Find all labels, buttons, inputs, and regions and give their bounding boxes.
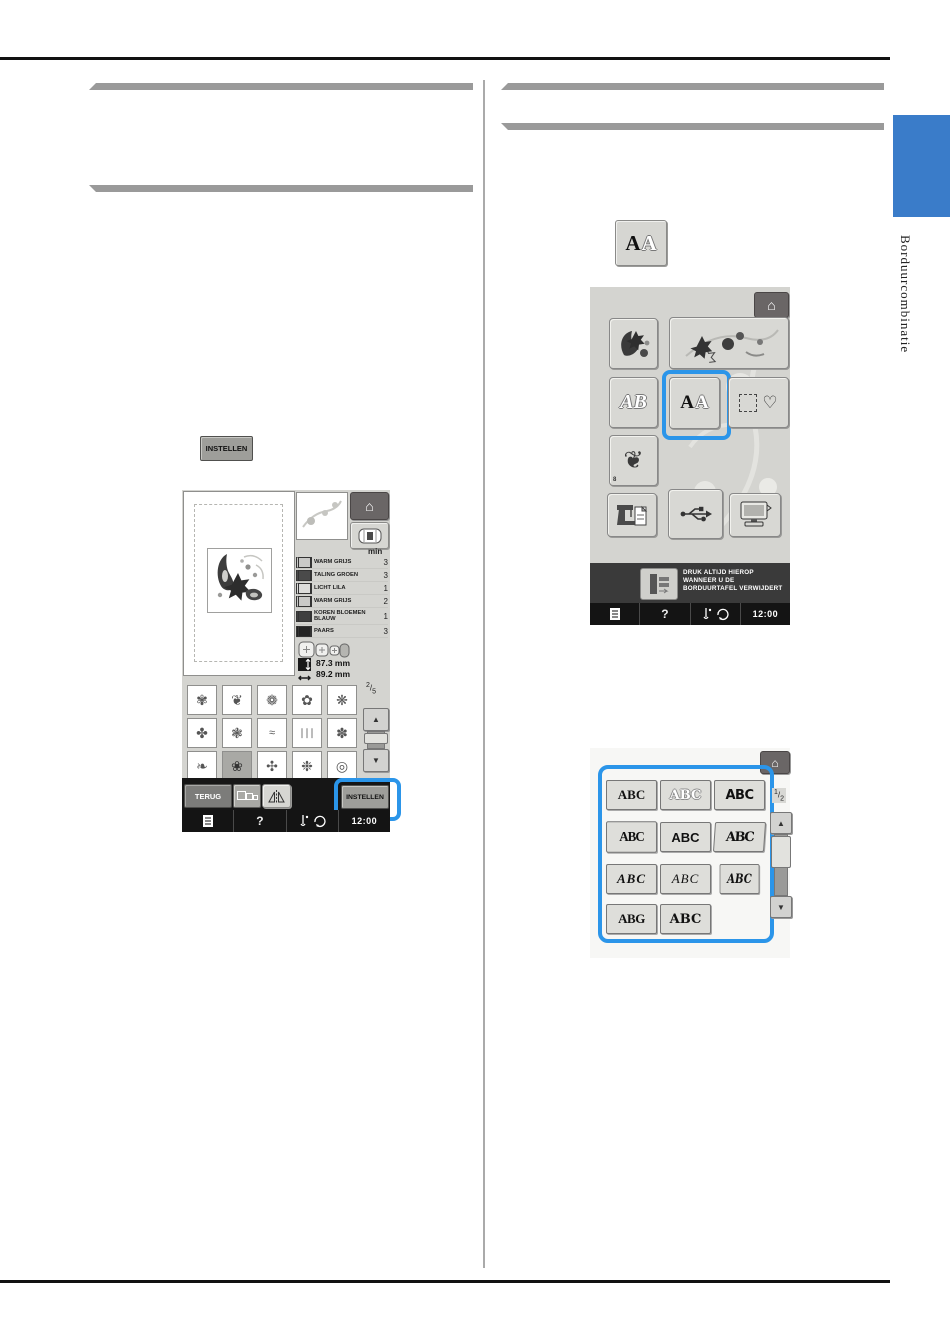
help-icon: ? [661,607,668,621]
usb-media-button[interactable] [668,489,723,539]
pattern-cell[interactable]: ❧ [187,751,217,781]
thread-minutes: 3 [370,571,388,580]
font-sample: ABC [617,871,646,887]
scroll-down-button[interactable]: ▼ [770,896,792,918]
page-den: 5 [372,688,376,695]
up-arrow-icon: ▲ [372,715,380,724]
font-sample: ABC [671,830,699,845]
needle-position-button[interactable] [690,603,740,625]
pattern-cell[interactable]: ❦ [222,685,252,715]
machine-screen-pattern-edit: ⌂ min WARM GRIJS 3 TALING GROEN 3 [182,490,390,832]
thread-row: KOREN BLOEMEN BLAUW 1 [296,608,388,625]
pattern-thumbnail-box [296,492,348,540]
computer-button[interactable] [729,493,781,537]
pattern-cell[interactable]: ❋ [327,685,357,715]
embroidery-carriage-icon [647,573,671,595]
pattern-cell[interactable]: ◎ [327,751,357,781]
thread-minutes: 3 [370,627,388,636]
pattern-preview-area [183,491,295,676]
pattern-cell[interactable]: ✣ [257,751,287,781]
scrollbar-handle[interactable] [771,836,791,868]
status-bar: ? 12:00 [590,603,790,625]
letter-a-outline: A [642,231,657,256]
large-floral-patterns-button[interactable] [669,317,789,369]
chapter-tab [893,115,950,217]
pattern-glyph: ❦ [231,692,243,709]
pattern-glyph: ✽ [336,725,348,742]
thread-minutes: 1 [370,584,388,593]
memo-icon [609,607,621,621]
mirror-image-button[interactable] [262,784,291,808]
needle-threading-rotate-icon [298,814,326,828]
manual-page: Borduurcombinatie INSTELLEN [0,0,950,1344]
heart-icon: ♡ [762,393,777,413]
status-bar: ? 12:00 [182,810,390,832]
scrollwork-icon: ❦ [623,446,643,475]
machine-screen-font-select: ⌂ ABC ABC ABC ABC ABC ABC ABC ABC ABC AB… [590,748,790,958]
thread-name: WARM GRIJS [314,598,370,604]
font-button-5[interactable]: ABC [660,822,711,852]
pattern-glyph: ✾ [196,692,208,709]
hoop-sizes-icon [298,640,350,659]
pattern-glyph: ◎ [336,758,348,775]
font-button-4[interactable]: ABC [606,821,657,853]
top-rule [0,57,890,60]
pattern-glyph: ❁ [266,692,278,709]
thread-minutes: 2 [370,597,388,606]
size-select-button[interactable] [233,784,261,808]
warning-line-3: BORDUURTAFEL VERWIJDERT [683,585,787,593]
page-num: 1 [774,789,778,796]
page-indicator: 2/5 [366,682,376,695]
thread-spool-icon [296,626,312,637]
warning-line-2: WANNEER U DE [683,577,787,585]
dimensions-icon [298,658,312,683]
thread-row: WARM GRIJS 2 [296,595,388,608]
embroidery-patterns-button[interactable] [609,318,658,369]
pattern-glyph: ❋ [336,692,348,709]
font-sample: ABC [672,871,700,887]
thread-name: PAARS [314,628,370,634]
pattern-cell[interactable]: ∣∣∣ [292,718,322,748]
scrollbar-handle[interactable] [364,733,388,744]
pattern-dimensions: 87.3 mm 89.2 mm [298,658,350,683]
up-arrow-icon: ▲ [777,819,785,828]
time-display: 12:00 [753,609,779,619]
column-divider [483,80,485,1268]
pattern-cell[interactable]: ✽ [327,718,357,748]
thread-row: PAARS 3 [296,625,388,638]
pattern-cell[interactable]: ≈ [257,718,287,748]
thread-spool-icon [296,596,312,607]
pattern-glyph: ✤ [196,725,208,742]
thread-minutes: 3 [370,558,388,567]
letter-a-solid: A [625,231,640,256]
font-sample: ABC [618,787,645,803]
down-arrow-icon: ▼ [372,756,380,765]
machine-memory-button[interactable] [607,493,657,537]
ab-decor-label: AB [620,391,647,414]
selected-pattern-preview [207,548,272,613]
memo-icon [202,814,214,828]
needle-threading-rotate-icon [701,607,729,621]
thread-name: WARM GRIJS [314,559,370,565]
pattern-glyph: ❃ [231,725,243,742]
usb-icon [679,504,713,524]
font-button-1[interactable]: ABC [606,780,657,810]
down-arrow-icon: ▼ [777,903,785,912]
pattern-count-badge: 8 [613,477,616,483]
embroidery-frame-icon [358,528,382,544]
home-icon: ⌂ [767,297,775,313]
thread-spool-icon [296,611,312,622]
pattern-glyph: ∣∣∣ [300,728,315,739]
help-icon: ? [256,814,263,828]
pattern-cell[interactable]: ❁ [257,685,287,715]
mirror-icon [268,790,285,803]
thread-name: KOREN BLOEMEN BLAUW [314,610,370,622]
memo-button[interactable] [590,603,639,625]
pattern-cell[interactable]: ✿ [292,685,322,715]
pattern-height-value: 87.3 mm [316,658,350,669]
font-sample: ABC [727,872,752,887]
sizes-icon [237,787,258,805]
min-column-header: min [368,547,382,556]
font-sample: ABC [670,788,702,803]
character-key[interactable]: A A [615,220,667,266]
frame-display-button[interactable] [350,522,389,549]
section-bar [89,83,473,90]
font-button-11[interactable]: ABC [660,904,711,934]
help-button[interactable]: ? [233,810,285,832]
machine-screen-type-select: ⌂ AB A [590,287,790,625]
pattern-glyph: ≈ [269,727,275,739]
thread-name: TALING GROEN [314,572,370,578]
pattern-cell-selected[interactable]: ❀ [222,751,252,781]
decorated-alphabet-button[interactable]: AB [609,377,658,428]
home-button[interactable]: ⌂ [754,292,789,318]
pattern-glyph: ✣ [266,758,278,775]
thread-minutes: 1 [370,612,388,621]
font-button-6[interactable]: ABC [713,822,766,852]
home-icon: ⌂ [771,756,778,770]
butterfly-pattern-art [208,549,269,610]
font-sample: ABC [725,830,753,845]
computer-icon [738,500,772,530]
character-button-highlight-ring [662,370,731,440]
section-bar [501,83,884,90]
sewing-machine-memory-icon [615,501,649,529]
font-sample: ABC [670,912,702,927]
font-sample: ABG [618,911,645,927]
pattern-width-value: 89.2 mm [316,669,350,680]
pattern-glyph: ❧ [196,758,208,775]
section-bar [501,123,884,130]
carriage-button[interactable] [640,568,678,600]
pattern-glyph: ❀ [231,758,243,775]
clock[interactable]: 12:00 [740,603,790,625]
page-den: 2 [780,795,784,802]
pattern-cell[interactable]: ✾ [187,685,217,715]
scroll-up-button[interactable]: ▲ [770,812,792,834]
font-sample: ABC [725,788,753,803]
font-button-3[interactable]: ABC [714,780,765,810]
chapter-title-vertical: Borduurcombinatie [897,235,913,395]
font-sample: ABC [619,829,643,846]
thread-name: LICHT LILA [314,585,370,591]
thread-row: LICHT LILA 1 [296,582,388,595]
carriage-warning-text: DRUK ALTIJD HIEROP WANNEER U DE BORDUURT… [683,569,787,594]
needle-position-button[interactable] [286,810,338,832]
thread-row: TALING GROEN 3 [296,569,388,582]
thread-color-list: WARM GRIJS 3 TALING GROEN 3 LICHT LILA 1… [296,556,388,638]
pattern-cell[interactable]: ❃ [222,718,252,748]
warning-line-1: DRUK ALTIJD HIEROP [683,569,787,577]
pattern-glyph: ❉ [301,758,313,775]
bobbin-work-patterns-button[interactable]: ❦ 8 [609,435,658,486]
thread-spool-icon [296,557,312,568]
memo-button[interactable] [182,810,233,832]
clock[interactable]: 12:00 [338,810,390,832]
font-button-2[interactable]: ABC [660,780,711,810]
pattern-cell[interactable]: ❉ [292,751,322,781]
thread-spool-icon [296,583,312,594]
pattern-glyph: ✿ [301,692,313,709]
scroll-down-button[interactable]: ▼ [363,749,389,772]
bottom-rule [0,1280,890,1283]
font-button-9[interactable]: ABC [720,864,760,894]
flower-pattern-icon [616,325,652,363]
terug-button[interactable]: TERUG [184,784,232,808]
home-icon: ⌂ [365,498,373,514]
help-button[interactable]: ? [639,603,689,625]
frame-square-icon [739,394,757,412]
font-button-10[interactable]: ABG [606,904,657,934]
carriage-warning-bar: DRUK ALTIJD HIEROP WANNEER U DE BORDUURT… [590,563,790,603]
floral-spray-icon [676,322,782,364]
pattern-thumbnail-art [297,493,345,537]
thread-row: WARM GRIJS 3 [296,556,388,569]
section-bar [89,185,473,192]
frame-patterns-button[interactable]: ♡ [728,377,789,428]
scroll-up-button[interactable]: ▲ [363,708,389,731]
time-display: 12:00 [352,816,378,826]
pattern-cell[interactable]: ✤ [187,718,217,748]
font-button-8[interactable]: ABC [660,864,711,894]
page-indicator: 1/2 [772,788,786,803]
page-num: 2 [366,682,370,689]
home-button[interactable]: ⌂ [350,492,389,520]
font-button-7[interactable]: ABC [606,864,657,894]
instellen-key[interactable]: INSTELLEN [200,436,253,461]
thread-spool-icon [296,570,312,581]
